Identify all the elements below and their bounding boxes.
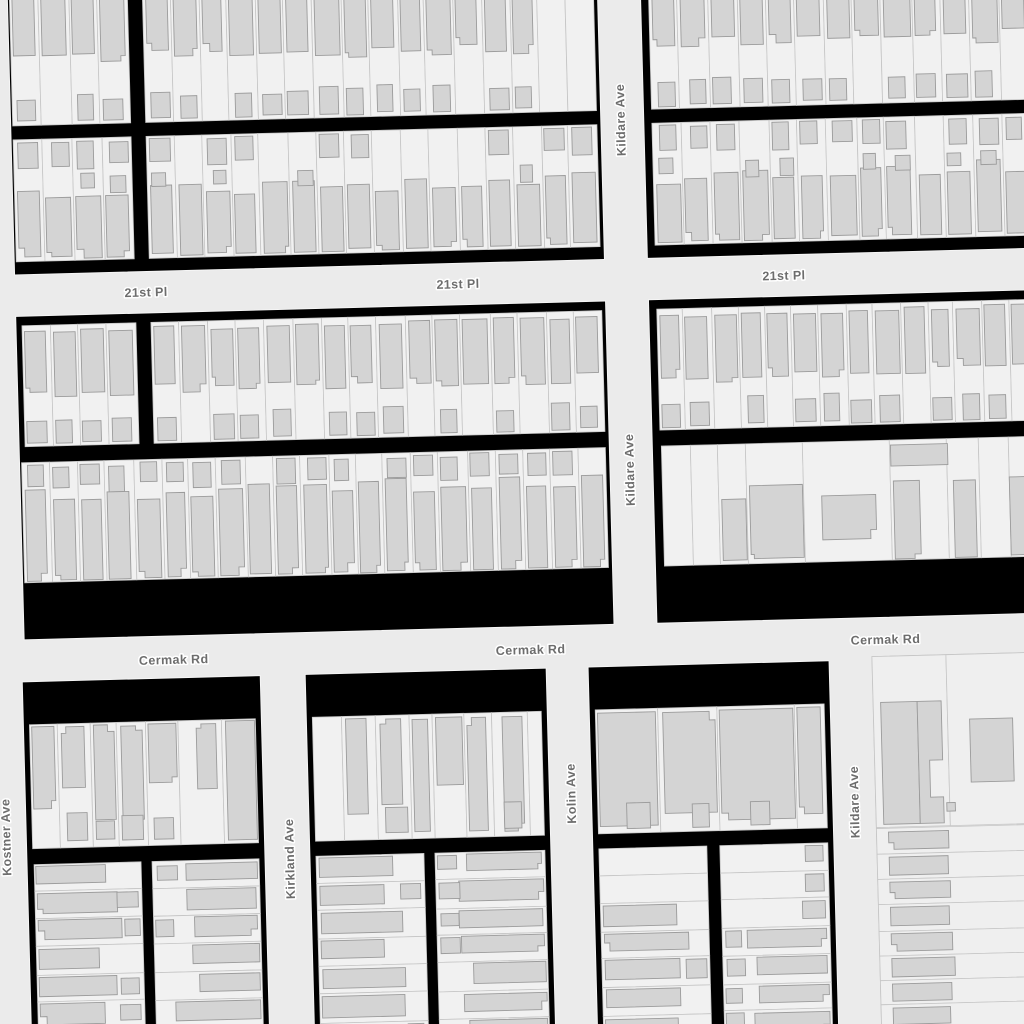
svg-text:Kostner Ave: Kostner Ave (0, 799, 14, 876)
svg-text:Kolin Ave: Kolin Ave (564, 763, 580, 824)
svg-text:Kildare Ave: Kildare Ave (613, 84, 629, 157)
svg-text:21st Pl: 21st Pl (124, 285, 167, 300)
svg-text:Kirkland Ave: Kirkland Ave (282, 819, 298, 900)
svg-text:Cermak Rd: Cermak Rd (496, 642, 566, 658)
svg-text:Kildare Ave: Kildare Ave (622, 434, 638, 507)
svg-text:21st Pl: 21st Pl (762, 268, 805, 283)
svg-text:Cermak Rd: Cermak Rd (139, 652, 209, 668)
svg-text:Cermak Rd: Cermak Rd (850, 632, 920, 648)
svg-text:Kildare Ave: Kildare Ave (847, 766, 863, 839)
svg-text:21st Pl: 21st Pl (436, 277, 479, 292)
